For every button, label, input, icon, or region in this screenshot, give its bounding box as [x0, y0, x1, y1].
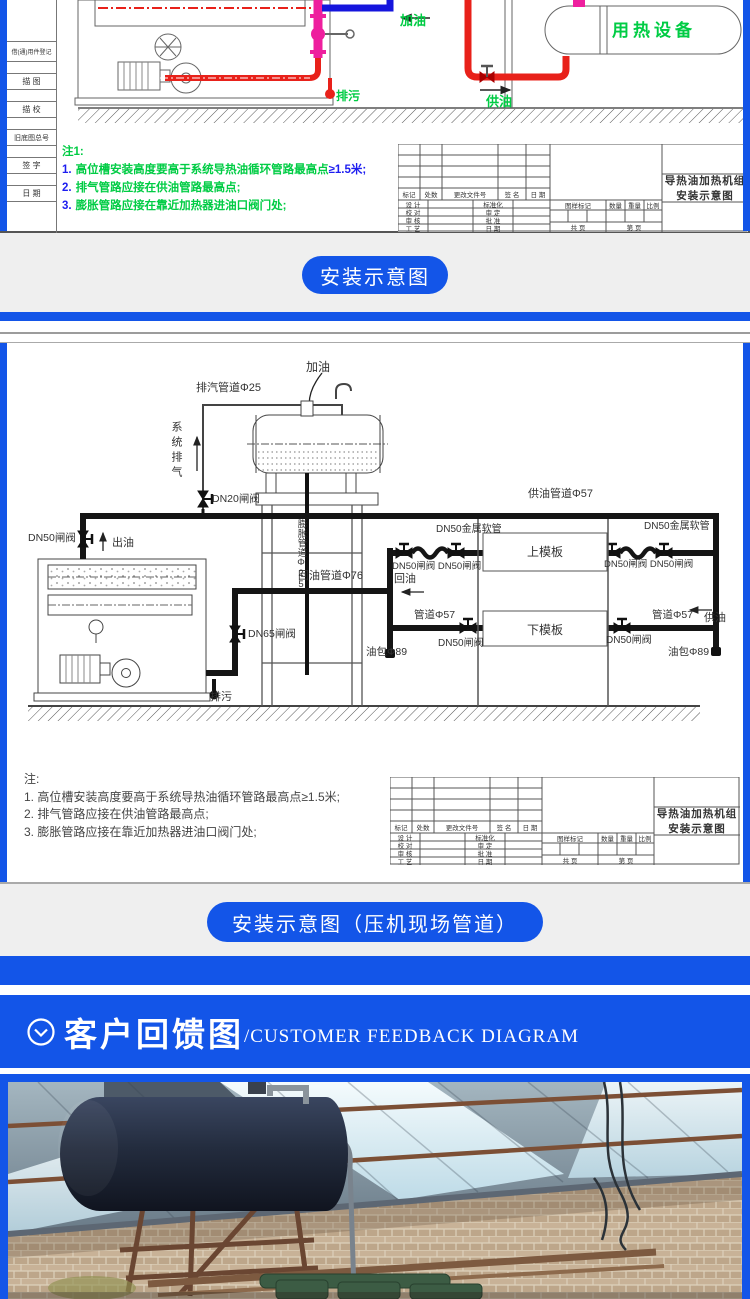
note-number: 2.: [62, 182, 72, 194]
label-dn20-valve: DN20闸阀: [212, 494, 260, 505]
feedback-title-en: /CUSTOMER FEEDBACK DIAGRAM: [244, 1026, 579, 1048]
tb-cell: 审 定: [473, 208, 513, 216]
tb-cell: 处数: [412, 821, 434, 833]
side-cell-label: 日 期: [7, 186, 56, 202]
label-system-vent: 系统排气: [170, 421, 181, 481]
tb-cell: 工 艺: [398, 224, 428, 232]
page-side-border: [0, 0, 7, 231]
tb-cell: 签 名: [498, 188, 526, 200]
tb-cell: 第 页: [606, 222, 662, 232]
side-cell-label: 旧底图总号: [7, 130, 56, 146]
tb-cell: 共 页: [550, 222, 606, 232]
note-number: 1.: [62, 164, 72, 176]
note-number: 3.: [62, 200, 72, 212]
blue-separator-bar: [0, 312, 750, 321]
side-cell-label: 签 字: [7, 158, 56, 174]
note-line: 3.膨胀管路应接在靠近加热器进油口阀门处;: [62, 197, 407, 215]
label-dn50-valve: DN50闸阀: [438, 639, 484, 649]
label-add-oil: 加油: [306, 361, 330, 373]
label-oil-pocket: 油包Φ89: [668, 647, 709, 658]
note-line: 1.高位槽安装高度要高于系统导热油循环管路最高点≥1.5米;: [62, 161, 407, 179]
label-heat-device: 用热设备: [612, 22, 696, 39]
label-drain: 排污: [336, 90, 360, 102]
label-return-pipe: 回油管道Φ76: [298, 571, 363, 582]
label-supply-oil: 供油: [486, 95, 512, 108]
side-cell-label: 借(通)用件登记: [7, 42, 56, 62]
customer-feedback-photo-block: [0, 1074, 750, 1299]
blue-separator-bar: [0, 956, 750, 985]
label-flex-hose: DN50金属软管: [436, 525, 502, 535]
title-block: 标记 处数 更改文件号 签 名 日 期 设 计 校 对 审 核 工 艺 标准化 …: [390, 777, 740, 865]
tb-cell: 重量: [625, 200, 644, 210]
tb-cell: 更改文件号: [442, 188, 498, 200]
tb-cell: 批 准: [465, 849, 505, 857]
tb-cell: 图样标记: [550, 200, 606, 210]
installation-drawing-1: 借(通)用件登记 描 图 描 校 旧底图总号 签 字 日 期 加油 排污 用热设…: [0, 0, 750, 233]
button-band-1: 安装示意图: [0, 233, 750, 312]
label-add-oil: 加油: [400, 14, 426, 27]
side-cell-blank: [7, 146, 56, 158]
product-detail-page: 借(通)用件登记 描 图 描 校 旧底图总号 签 字 日 期 加油 排污 用热设…: [0, 0, 750, 1299]
tb-cell: 比例: [644, 200, 662, 210]
customer-feedback-header: 客户回馈图 /CUSTOMER FEEDBACK DIAGRAM: [0, 995, 750, 1068]
tb-cell: 日 期: [473, 224, 513, 232]
tb-cell: 工 艺: [390, 857, 420, 865]
tb-cell: 处数: [420, 188, 442, 200]
side-cell-blank: [7, 174, 56, 186]
installation-diagram-button[interactable]: 安装示意图: [302, 256, 448, 294]
label-dn50-pair: DN50闸阀 DN50闸阀: [604, 560, 693, 570]
tb-cell: 标准化: [465, 833, 505, 841]
tb-cell: 校 对: [398, 208, 428, 216]
note-highlight: ≥1.5米;: [329, 164, 367, 176]
tb-cell: 校 对: [390, 841, 420, 849]
label-out-oil: 出油: [112, 538, 134, 549]
installation-diagram-press-button[interactable]: 安装示意图（压机现场管道）: [207, 902, 543, 942]
diagram1-notes: 注1: 1.高位槽安装高度要高于系统导热油循环管路最高点≥1.5米; 2.排气管…: [62, 143, 407, 215]
side-cell-blank: [7, 118, 56, 130]
label-return-oil: 回油: [394, 574, 416, 585]
chevron-down-circle-icon: [26, 1017, 56, 1047]
tb-drawing-title: 导热油加热机组安装示意图: [662, 174, 748, 202]
notes-head: 注1:: [62, 143, 407, 161]
side-cell-label: 描 图: [7, 74, 56, 90]
label-flex-hose: DN50金属软管: [644, 522, 710, 532]
label-oil-pocket: 油包Φ89: [366, 647, 407, 658]
installation-drawing-2: 加油 排汽管道Φ25 系统排气 DN20闸阀 DN50闸阀 出油 膨胀管道Φ25…: [0, 342, 750, 884]
tb-cell: 签 名: [490, 821, 518, 833]
page-side-border: [0, 343, 7, 882]
note-text: 排气管路应接在供油管路最高点;: [76, 182, 241, 194]
tb-cell: 数量: [598, 833, 617, 843]
tb-cell: 标记: [398, 188, 420, 200]
label-pipe57: 管道Φ57: [652, 610, 693, 621]
note-line: 2. 排气管路应接在供油管路最高点;: [24, 806, 384, 824]
feedback-title-cn: 客户回馈图: [64, 1008, 244, 1056]
tb-cell: 更改文件号: [434, 821, 490, 833]
note-line: 1. 高位槽安装高度要高于系统导热油循环管路最高点≥1.5米;: [24, 789, 384, 807]
tb-cell: 图样标记: [542, 833, 598, 843]
tb-cell: 第 页: [598, 855, 654, 865]
side-cell-blank: [7, 0, 56, 42]
note-text: 膨胀管路应接在靠近加热器进油口阀门处;: [76, 200, 287, 212]
side-cell-label: 描 校: [7, 102, 56, 118]
tb-cell: 共 页: [542, 855, 598, 865]
tb-cell: 日 期: [526, 188, 550, 200]
tb-drawing-title: 导热油加热机组安装示意图: [654, 807, 740, 835]
tb-cell: 比例: [636, 833, 654, 843]
notes-head: 注:: [24, 771, 384, 789]
label-exhaust-pipe: 排汽管道Φ25: [196, 383, 261, 394]
label-supply-oil: 供油: [704, 613, 726, 624]
title-block: 标记 处数 更改文件号 签 名 日 期 设 计 校 对 审 核 工 艺 标准化 …: [398, 144, 748, 232]
label-supply-pipe: 供油管道Φ57: [528, 489, 593, 500]
button-band-2: 安装示意图（压机现场管道）: [0, 884, 750, 956]
drawing-frame-side-column: 借(通)用件登记 描 图 描 校 旧底图总号 签 字 日 期: [7, 0, 57, 233]
label-pipe57: 管道Φ57: [414, 610, 455, 621]
tb-cell: 批 准: [473, 216, 513, 224]
tb-cell: 重量: [617, 833, 636, 843]
label-dn65-valve: DN65闸阀: [248, 629, 296, 640]
label-dn50-valve: DN50闸阀: [606, 636, 652, 646]
tb-cell: 日 期: [518, 821, 542, 833]
tb-cell: 设 计: [398, 200, 428, 208]
note-line: 3. 膨胀管路应接在靠近加热器进油口阀门处;: [24, 824, 384, 842]
note-text: 高位槽安装高度要高于系统导热油循环管路最高点: [76, 164, 329, 176]
gray-separator-line: [0, 332, 750, 334]
label-drain: 排污: [210, 692, 232, 703]
side-cell-blank: [7, 90, 56, 102]
side-cell-blank: [7, 62, 56, 74]
tb-cell: 标记: [390, 821, 412, 833]
site-installation-photo: [8, 1082, 742, 1299]
label-dn50-valve: DN50闸阀: [28, 533, 76, 544]
label-dn50-pair: DN50闸阀 DN50闸阀: [392, 562, 481, 572]
page-side-border: [743, 343, 750, 882]
tb-cell: 审 定: [465, 841, 505, 849]
label-upper-mold: 上模板: [483, 546, 607, 558]
tb-cell: 审 核: [390, 849, 420, 857]
tb-cell: 日 期: [465, 857, 505, 865]
note-line: 2.排气管路应接在供油管路最高点;: [62, 179, 407, 197]
page-side-border: [743, 0, 750, 231]
photo-illustration: [8, 1082, 742, 1299]
label-lower-mold: 下模板: [483, 624, 607, 636]
diagram2-notes: 注: 1. 高位槽安装高度要高于系统导热油循环管路最高点≥1.5米; 2. 排气…: [24, 771, 384, 841]
tb-cell: 设 计: [390, 833, 420, 841]
tb-cell: 标准化: [473, 200, 513, 208]
tb-cell: 数量: [606, 200, 625, 210]
tb-cell: 审 核: [398, 216, 428, 224]
